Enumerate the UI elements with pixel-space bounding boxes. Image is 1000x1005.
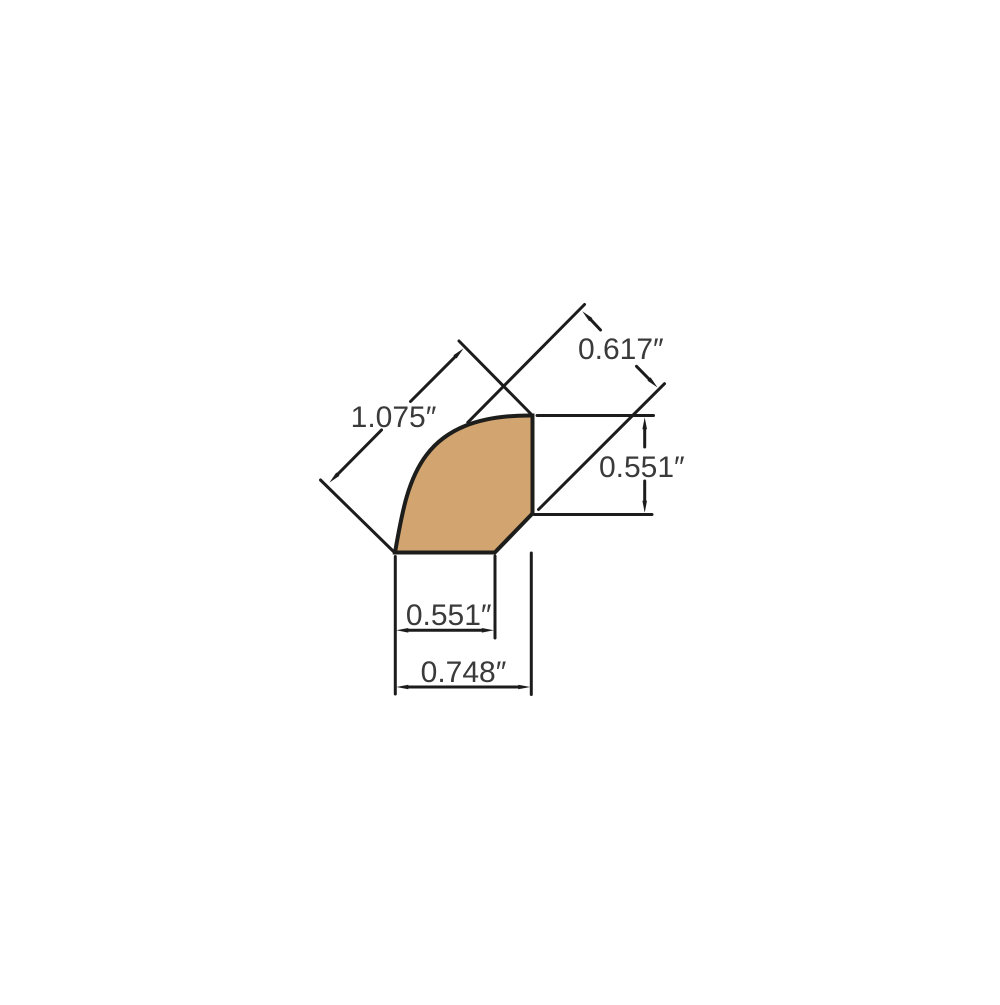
svg-text:0.748″: 0.748″: [421, 656, 507, 689]
svg-text:1.075″: 1.075″: [351, 401, 437, 434]
svg-text:0.617″: 0.617″: [578, 333, 664, 366]
svg-text:0.551″: 0.551″: [406, 599, 492, 632]
svg-text:0.551″: 0.551″: [599, 451, 685, 484]
